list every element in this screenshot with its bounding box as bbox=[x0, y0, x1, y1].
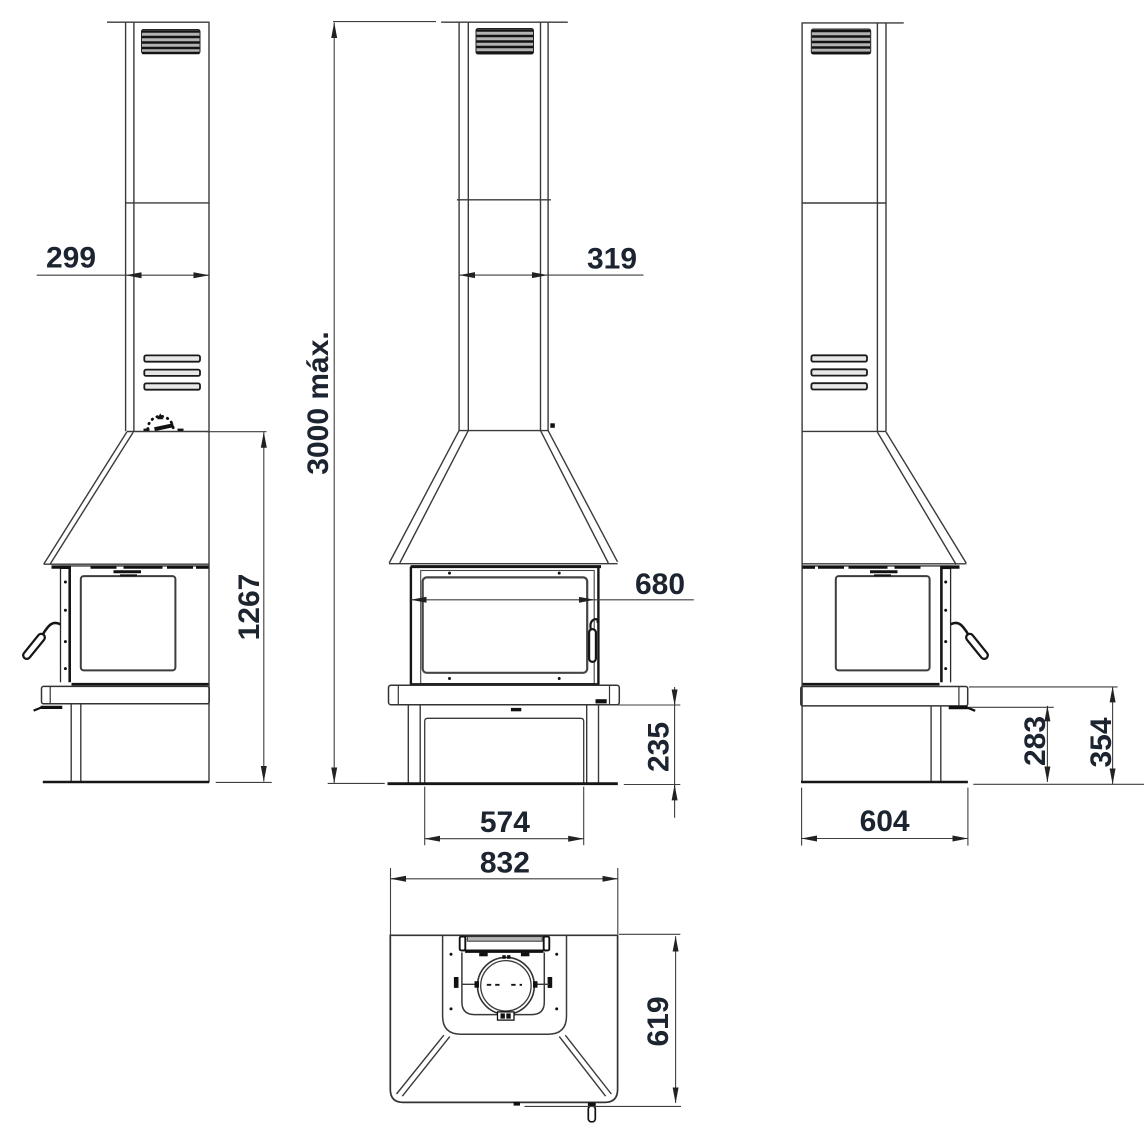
svg-text:574: 574 bbox=[480, 806, 530, 839]
svg-text:235: 235 bbox=[642, 722, 675, 772]
svg-text:604: 604 bbox=[860, 805, 910, 838]
svg-text:680: 680 bbox=[635, 568, 685, 601]
svg-text:354: 354 bbox=[1085, 717, 1118, 767]
svg-text:1267: 1267 bbox=[233, 574, 266, 641]
svg-text:832: 832 bbox=[480, 847, 530, 880]
svg-text:619: 619 bbox=[642, 996, 675, 1046]
svg-text:283: 283 bbox=[1019, 716, 1052, 766]
svg-text:299: 299 bbox=[46, 242, 96, 275]
svg-text:3000 máx.: 3000 máx. bbox=[302, 331, 335, 474]
svg-text:319: 319 bbox=[587, 243, 637, 276]
